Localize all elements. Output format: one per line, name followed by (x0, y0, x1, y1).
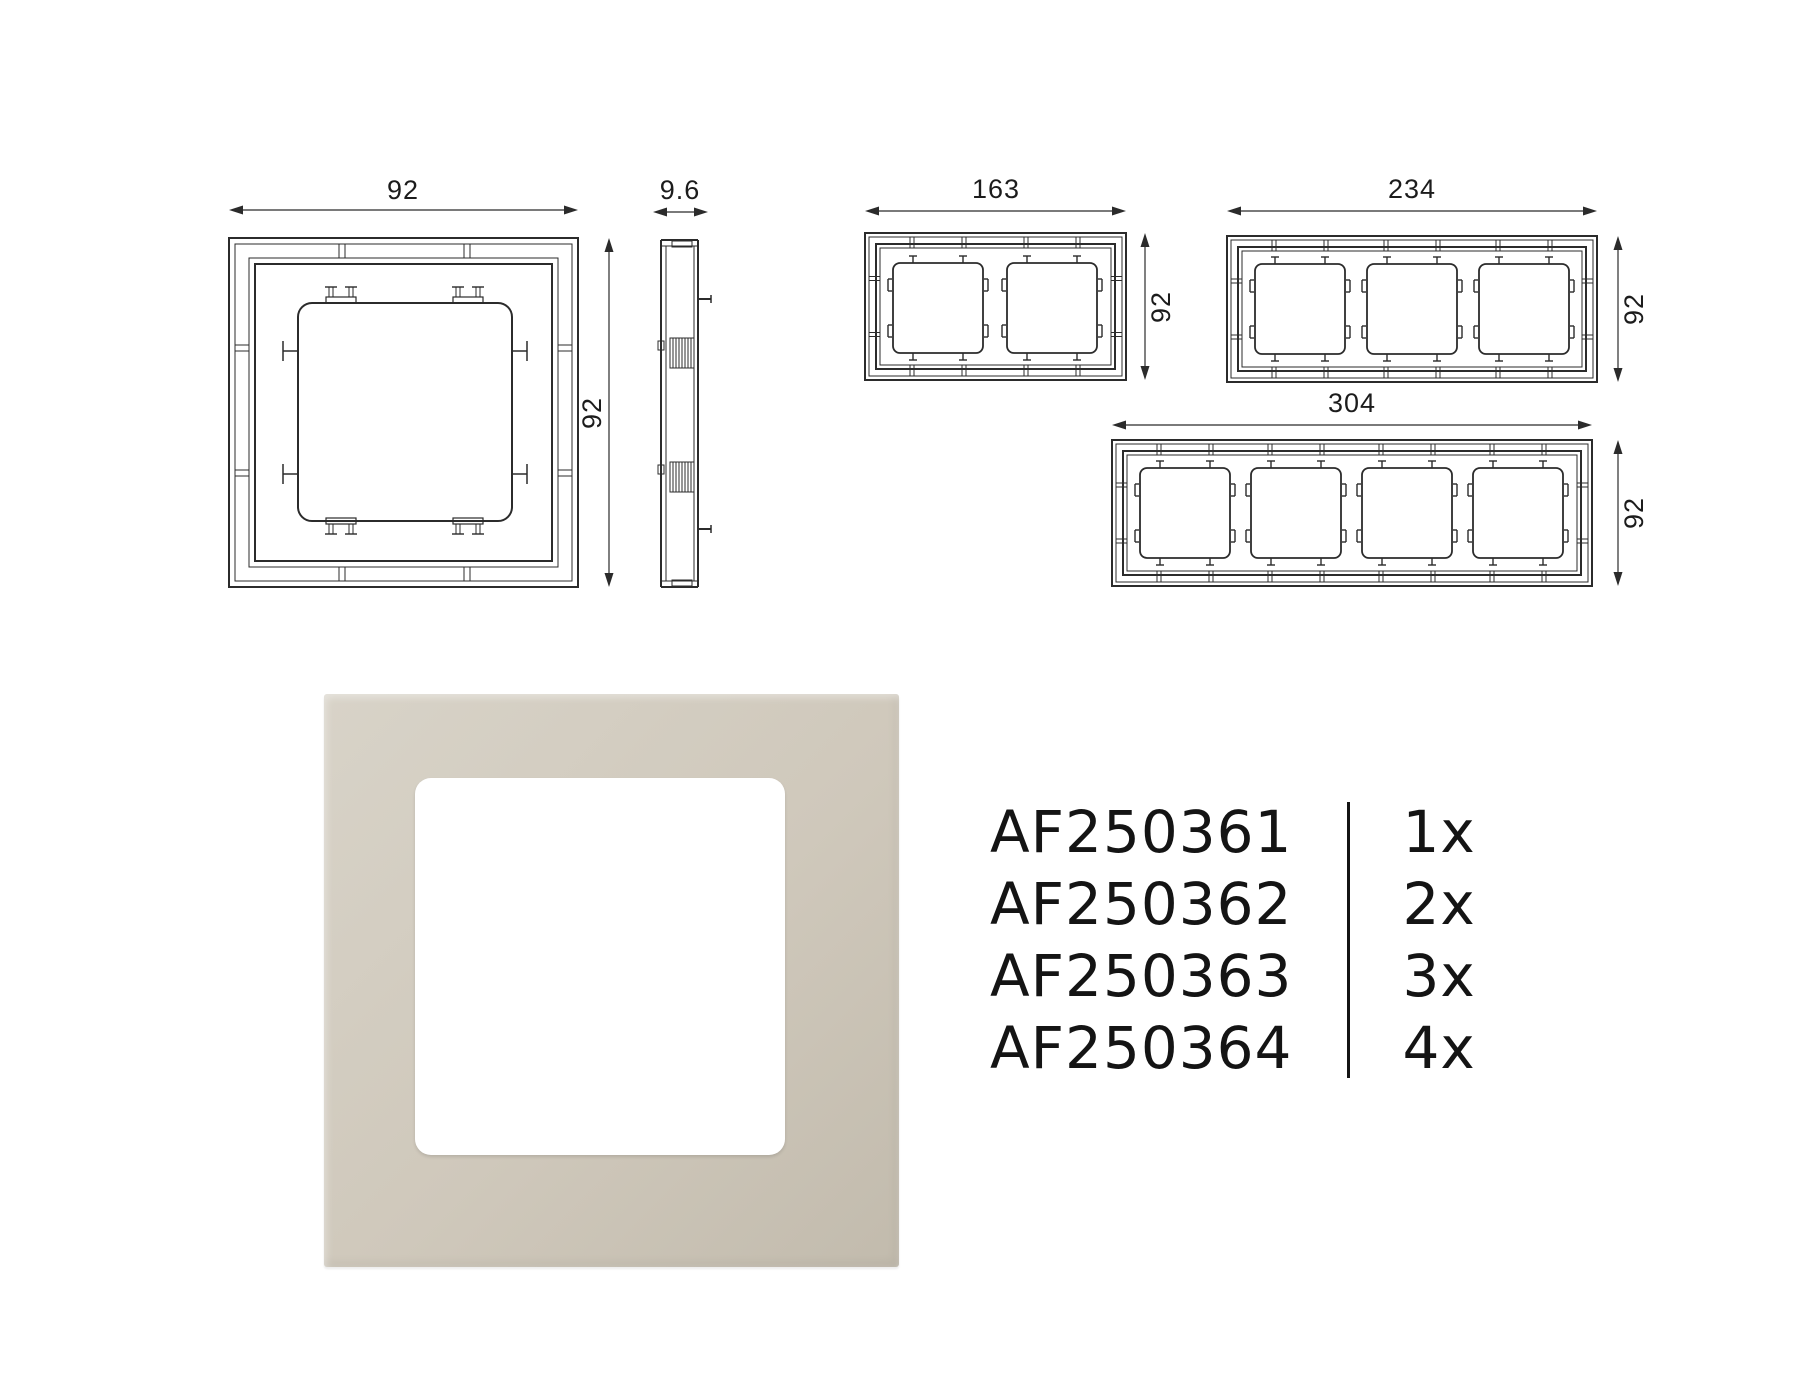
product-render-frame (324, 694, 899, 1267)
dim-label-2gang-width: 163 (972, 174, 1020, 204)
clip-prong (349, 287, 353, 297)
part-qty: 2x (1402, 868, 1475, 940)
part-code: AF250361 (990, 796, 1292, 868)
dim-arrow (1141, 233, 1150, 247)
dim-arrow (653, 208, 667, 217)
frame-inner-inner-edge (880, 248, 1111, 365)
frame-inner-edge (1238, 247, 1586, 371)
front-view-4-gang (1112, 421, 1623, 587)
frame-outer-edge (865, 233, 1126, 380)
dim-arrow (1112, 207, 1126, 216)
parts-list: AF250361 AF250362 AF250363 AF250364 1x 2… (990, 796, 1476, 1084)
window-opening (1362, 468, 1452, 558)
part-code: AF250362 (990, 868, 1292, 940)
clip-prong (456, 524, 460, 534)
datasheet-page: 92 92 9.6 163 92 234 92 304 92 AF250361 … (0, 0, 1800, 1400)
clip-prong (476, 524, 480, 534)
part-code: AF250364 (990, 1012, 1292, 1084)
window-opening (1473, 468, 1563, 558)
frame-outer-inner-edge (235, 244, 572, 581)
dim-arrow (1227, 207, 1241, 216)
frame-outer-inner-edge (1231, 240, 1593, 378)
clip-prong (329, 287, 333, 297)
window-opening (1367, 264, 1457, 354)
dim-arrow (1141, 366, 1150, 380)
dim-arrow (1583, 207, 1597, 216)
window-opening (1251, 468, 1341, 558)
window-opening (1140, 468, 1230, 558)
part-qty: 1x (1402, 796, 1475, 868)
profile-clip-hatched (670, 338, 694, 368)
frame-inner-inner-edge (1242, 251, 1582, 367)
part-qty: 3x (1402, 940, 1475, 1012)
dim-label-3gang-width: 234 (1388, 174, 1436, 204)
parts-qty-column: 1x 2x 3x 4x (1402, 796, 1475, 1084)
dim-label-side-depth: 9.6 (660, 175, 701, 205)
part-code: AF250363 (990, 940, 1292, 1012)
dim-label-3gang-height: 92 (1619, 293, 1649, 325)
dim-arrow (1614, 368, 1623, 382)
dim-arrow (564, 206, 578, 215)
dim-label-2gang-height: 92 (1146, 291, 1176, 323)
clip-prong (329, 524, 333, 534)
dim-arrow (229, 206, 243, 215)
front-view-1-gang (229, 206, 614, 588)
frame-outer-inner-edge (1116, 444, 1588, 582)
frame-inner-edge (1123, 451, 1581, 575)
dim-arrow (1614, 236, 1623, 250)
window-opening (1255, 264, 1345, 354)
technical-drawing-svg: 92 92 9.6 163 92 234 92 304 92 (0, 0, 1800, 1400)
dim-arrow (1614, 440, 1623, 454)
parts-divider-line (1347, 802, 1350, 1078)
profile-clip-hatched (670, 462, 694, 492)
dim-arrow (865, 207, 879, 216)
dim-arrow (1578, 421, 1592, 430)
frame-outer-inner-edge (869, 237, 1122, 376)
frame-inner-inner-edge (1127, 455, 1577, 571)
dim-label-4gang-width: 304 (1328, 388, 1376, 418)
parts-code-column: AF250361 AF250362 AF250363 AF250364 (990, 796, 1292, 1084)
clip-prong (476, 287, 480, 297)
dim-label-4gang-height: 92 (1619, 497, 1649, 529)
dim-label-1gang-height: 92 (577, 397, 607, 429)
dim-arrow (694, 208, 708, 217)
dim-label-1gang-width: 92 (387, 175, 419, 205)
clip-prong (456, 287, 460, 297)
dim-arrow (1112, 421, 1126, 430)
window-opening (893, 263, 983, 353)
window-opening (298, 303, 512, 521)
front-view-3-gang (1227, 207, 1623, 383)
dim-arrow (605, 238, 614, 252)
frame-outer-edge (1112, 440, 1592, 586)
frame-outer-edge (229, 238, 578, 587)
frame-outer-edge (1227, 236, 1597, 382)
clip-prong (349, 524, 353, 534)
front-view-2-gang (865, 207, 1150, 381)
dim-arrow (605, 573, 614, 587)
window-opening (1007, 263, 1097, 353)
part-qty: 4x (1402, 1012, 1475, 1084)
window-opening (1479, 264, 1569, 354)
side-view (653, 208, 711, 588)
dim-arrow (1614, 572, 1623, 586)
product-render-window (415, 778, 785, 1155)
